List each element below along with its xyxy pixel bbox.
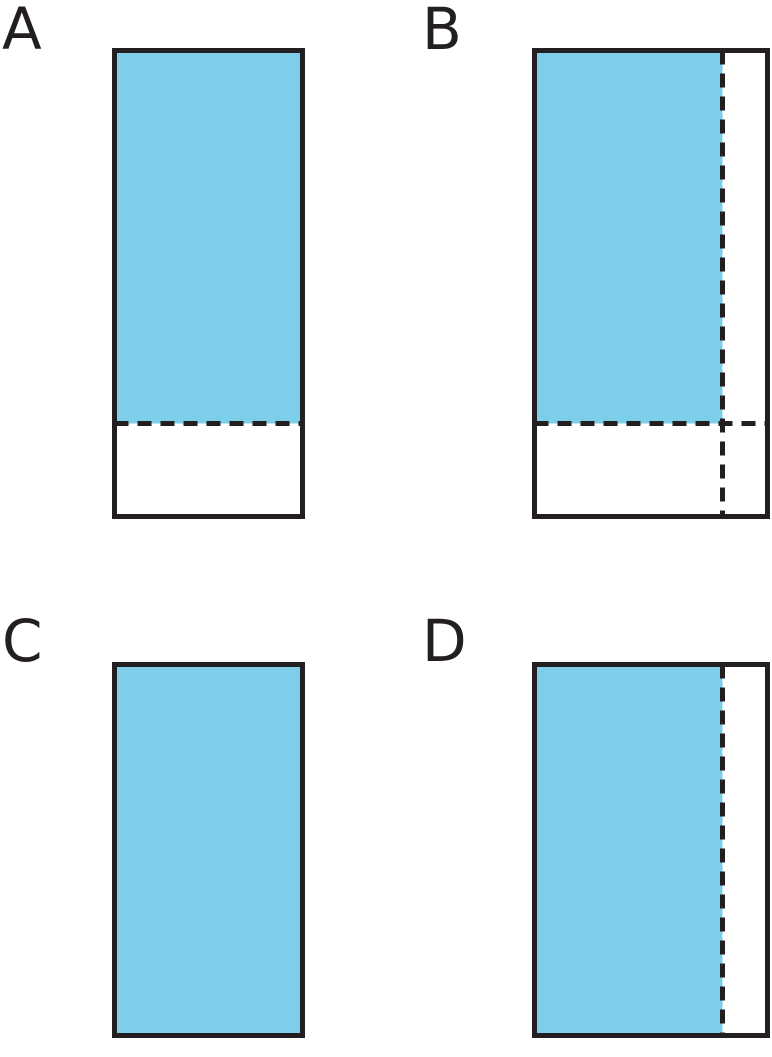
figure-c-shaded-region <box>115 665 303 1036</box>
diagram-canvas: A B C D <box>0 0 772 1057</box>
figure-a-shaded-region <box>115 51 303 424</box>
figure-c-rectangle <box>112 662 305 1038</box>
figure-b-shaded-region <box>535 51 723 424</box>
figure-b-rectangle <box>532 48 770 519</box>
figure-a-label: A <box>2 0 42 58</box>
figure-c-label: C <box>2 612 43 670</box>
figure-d-rectangle <box>532 662 770 1038</box>
figure-a-rectangle <box>112 48 305 519</box>
figure-d-label: D <box>422 612 467 670</box>
figure-b-label: B <box>422 0 462 58</box>
figure-d-shaded-region <box>535 665 723 1036</box>
